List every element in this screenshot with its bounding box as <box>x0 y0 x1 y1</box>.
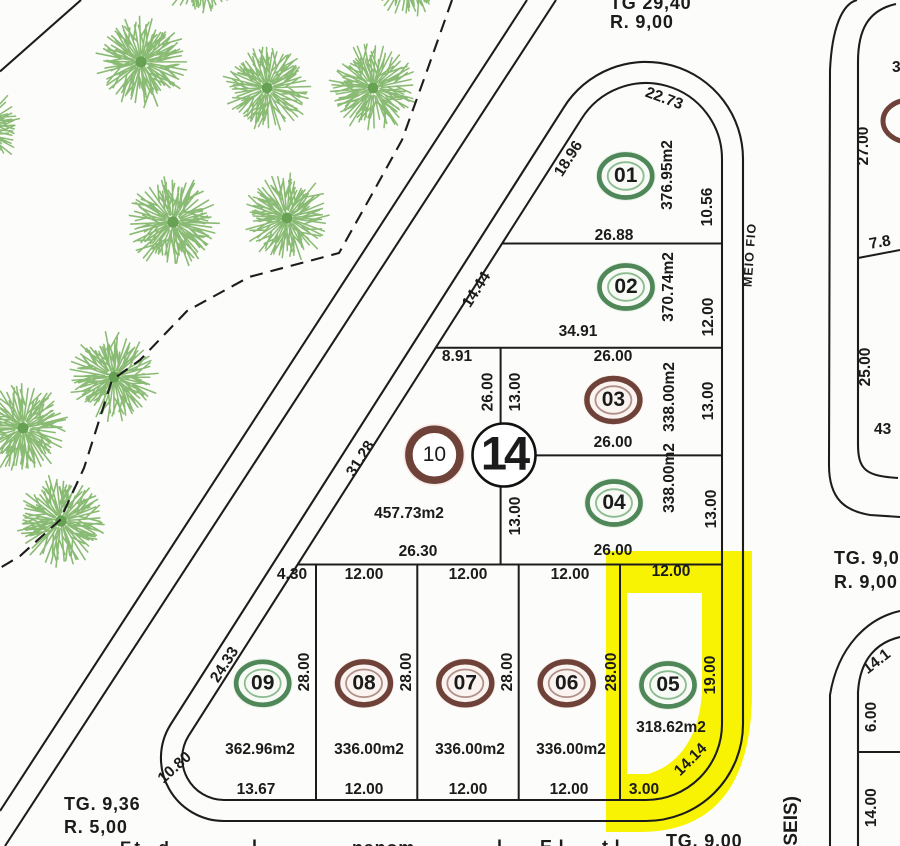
svg-text:26.30: 26.30 <box>399 543 438 560</box>
svg-text:12.00: 12.00 <box>700 298 717 337</box>
svg-text:E l: E l <box>540 837 564 846</box>
svg-text:4.30: 4.30 <box>277 566 307 583</box>
svg-text:336.00m2: 336.00m2 <box>334 741 404 758</box>
svg-text:34.91: 34.91 <box>559 323 598 340</box>
svg-text:338.00m2: 338.00m2 <box>661 443 678 513</box>
svg-text:318.62m2: 318.62m2 <box>636 719 706 736</box>
svg-text:R. 5,00: R. 5,00 <box>64 817 128 837</box>
svg-text:26.00: 26.00 <box>480 373 497 412</box>
svg-text:14: 14 <box>481 426 530 479</box>
svg-text:nanom: nanom <box>352 838 415 846</box>
svg-text:01: 01 <box>614 164 638 187</box>
svg-text:43: 43 <box>874 421 892 438</box>
svg-text:370.74m2: 370.74m2 <box>660 252 677 322</box>
svg-text:457.73m2: 457.73m2 <box>374 505 444 522</box>
svg-text:28.00: 28.00 <box>603 653 620 692</box>
svg-text:05: 05 <box>656 673 680 696</box>
svg-text:07: 07 <box>454 671 477 694</box>
svg-text:26.88: 26.88 <box>595 227 634 244</box>
svg-text:(SEIS): (SEIS) <box>781 796 802 846</box>
svg-text:t l: t l <box>602 837 620 846</box>
svg-text:10: 10 <box>423 443 446 466</box>
svg-text:362.96m2: 362.96m2 <box>225 741 295 758</box>
svg-text:26.00: 26.00 <box>594 434 633 451</box>
svg-text:13.00: 13.00 <box>703 490 720 529</box>
svg-text:25.00: 25.00 <box>857 348 874 387</box>
svg-text:27.00: 27.00 <box>855 127 872 166</box>
svg-text:03: 03 <box>602 388 625 411</box>
svg-text:l: l <box>252 837 258 846</box>
svg-text:06: 06 <box>555 671 578 694</box>
svg-text:26.00: 26.00 <box>594 348 633 365</box>
svg-text:338.00m2: 338.00m2 <box>661 362 678 432</box>
svg-text:TG. 9,36: TG. 9,36 <box>64 794 140 814</box>
svg-text:12.00: 12.00 <box>551 566 590 583</box>
svg-text:26.00: 26.00 <box>594 542 633 559</box>
svg-text:8.91: 8.91 <box>442 348 473 365</box>
svg-text:R. 9,00: R. 9,00 <box>834 572 898 592</box>
svg-text:10.56: 10.56 <box>699 187 716 226</box>
svg-text:12.00: 12.00 <box>345 566 384 583</box>
svg-text:13.00: 13.00 <box>507 373 524 412</box>
svg-text:13.67: 13.67 <box>237 781 276 798</box>
svg-text:28.00: 28.00 <box>398 653 415 692</box>
svg-text:376.95m2: 376.95m2 <box>659 140 676 210</box>
svg-text:28.00: 28.00 <box>499 653 516 692</box>
svg-text:Et. d: Et. d <box>120 838 172 846</box>
svg-text:3: 3 <box>892 59 900 76</box>
svg-text:04: 04 <box>602 491 626 514</box>
svg-text:12.00: 12.00 <box>449 781 488 798</box>
svg-text:3.00: 3.00 <box>629 781 659 798</box>
svg-text:09: 09 <box>251 671 274 694</box>
svg-text:12.00: 12.00 <box>449 566 488 583</box>
svg-text:28.00: 28.00 <box>296 653 313 692</box>
svg-text:14.00: 14.00 <box>863 788 880 827</box>
svg-text:R. 9,00: R. 9,00 <box>610 12 674 32</box>
svg-text:TG. 9,00: TG. 9,00 <box>834 548 900 568</box>
svg-text:336.00m2: 336.00m2 <box>435 741 505 758</box>
svg-text:12.00: 12.00 <box>550 781 589 798</box>
svg-text:TG. 9,00: TG. 9,00 <box>666 831 742 846</box>
svg-text:12.00: 12.00 <box>345 781 384 798</box>
svg-text:08: 08 <box>352 671 376 694</box>
svg-text:13.00: 13.00 <box>507 497 524 536</box>
svg-text:13.00: 13.00 <box>700 382 717 421</box>
svg-text:6.00: 6.00 <box>863 702 880 732</box>
svg-text:l: l <box>497 837 503 846</box>
svg-text:12.00: 12.00 <box>652 563 691 580</box>
svg-text:02: 02 <box>614 275 637 298</box>
svg-text:336.00m2: 336.00m2 <box>536 741 606 758</box>
svg-text:19.00: 19.00 <box>702 656 719 695</box>
